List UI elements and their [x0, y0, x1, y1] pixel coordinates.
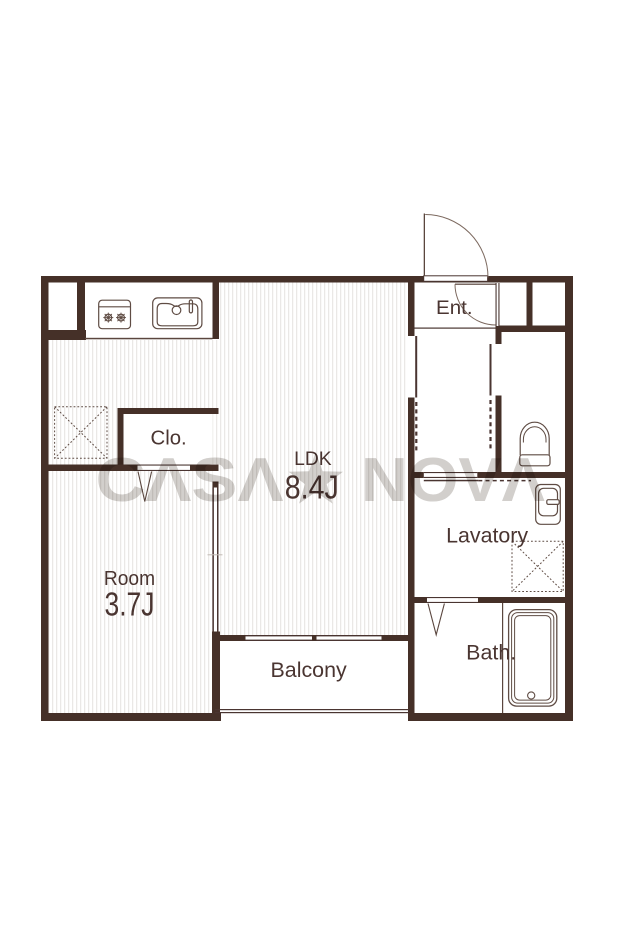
svg-text:Lavatory: Lavatory — [446, 525, 529, 548]
svg-text:3.7J: 3.7J — [105, 585, 155, 622]
svg-text:CΛSΛ: CΛSΛ — [96, 446, 284, 515]
svg-text:NOVΛ: NOVΛ — [361, 446, 545, 515]
svg-text:Balcony: Balcony — [271, 659, 348, 682]
svg-text:Ent.: Ent. — [436, 298, 473, 319]
svg-text:Bath.: Bath. — [466, 641, 516, 664]
